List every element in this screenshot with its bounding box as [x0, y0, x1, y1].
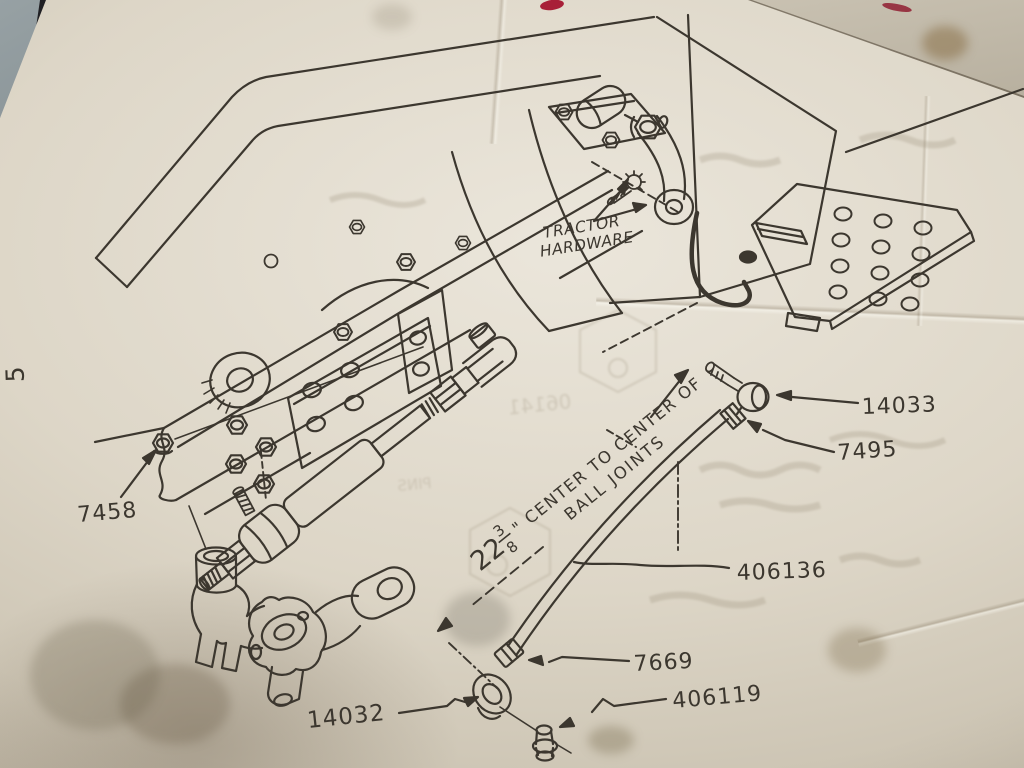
threaded-stud: [232, 486, 255, 516]
part-label-jam-nut: 7458: [76, 498, 138, 528]
bolt-plate: [288, 318, 441, 468]
part-label-tie-rod-end-upper: 14033: [861, 392, 937, 420]
steering-arm: [189, 506, 421, 708]
step-plate: [692, 184, 974, 331]
part-label-drag-link-tube: 7495: [837, 437, 899, 466]
ink-drawing: [95, 15, 1023, 761]
page-number: 5: [0, 366, 30, 383]
part-label-rod-end-lower: 14032: [306, 700, 386, 734]
bleed-through-number: 06141: [507, 389, 573, 420]
hardware-note: TRACTOR HARDWARE: [536, 210, 635, 260]
upper-stud: [704, 361, 742, 391]
part-label-clamp-collar: 7669: [633, 649, 694, 677]
part-label-stud-bushing: 406119: [671, 681, 763, 714]
photographed-diagram-page: 06141 PINS: [0, 0, 1024, 768]
part-label-drag-link-rod: 406136: [736, 558, 827, 586]
line-drawing: 06141 PINS: [0, 0, 1024, 768]
mount-plate-and-arm: [549, 80, 693, 224]
pedestal-bracket: [96, 15, 1023, 331]
bleed-through-word: PINS: [397, 474, 433, 495]
stud-bushing: [533, 726, 571, 761]
